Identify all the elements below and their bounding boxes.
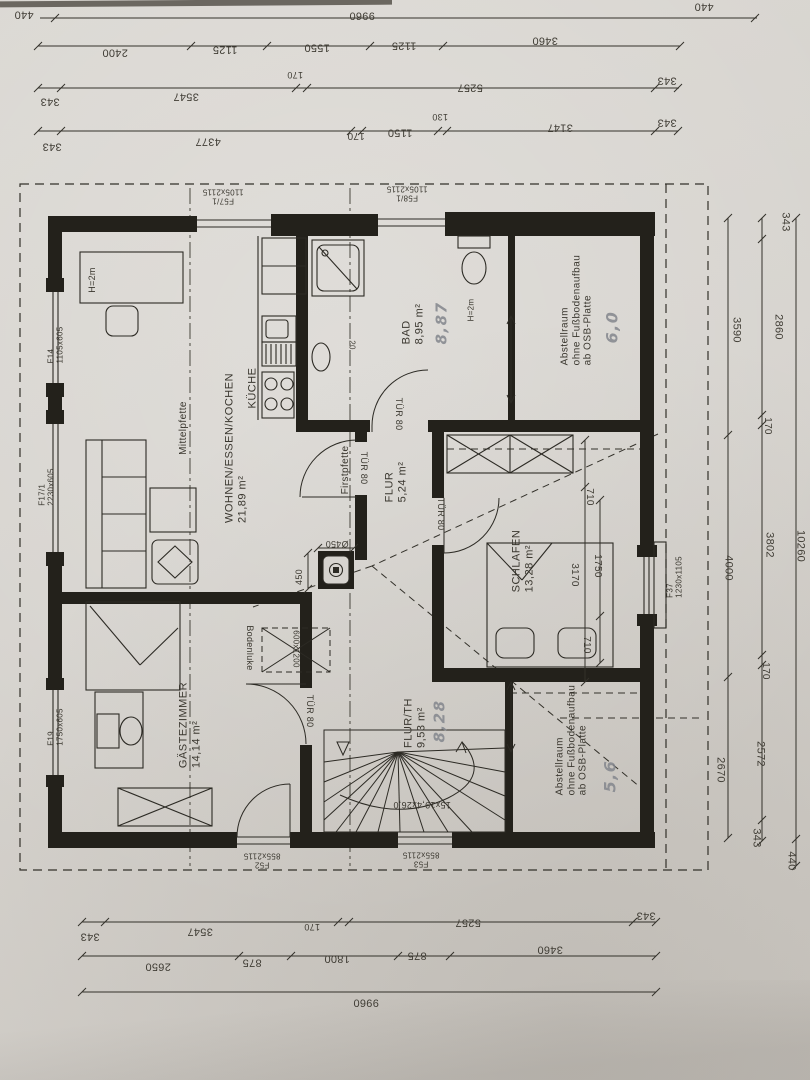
dim-label: 2670 [714,757,727,783]
window-label-f14: F14 1105x605 [47,327,66,364]
dimension-lines [34,14,800,996]
dim-label: 440 [14,8,33,21]
dim-label: 1125 [392,39,417,52]
dim-label: 1150 [388,126,413,139]
dim-label: 2650 [145,960,171,973]
dim-label: 875 [407,949,426,962]
dim-label: 343 [42,140,61,153]
room-label-bad: BAD 8,95 m² [400,304,426,345]
dim-label: 710 [580,636,592,654]
dim-label: 440 [694,0,713,12]
door-label-f53: F53 855x2115 [403,850,440,869]
dim-label: 3802 [763,532,776,558]
dim-label: 1800 [324,952,350,965]
handwritten-area: 5,6 [602,760,621,793]
dim-label: 170 [287,70,303,80]
dim-label: 1125 [213,43,238,56]
note-bodenluke-size: 600x1200 [291,630,300,668]
dim-label: 3460 [537,943,563,956]
dim-label: 4000 [722,555,735,581]
dim-label: 3590 [730,317,743,343]
window-label-f17: F17/1 2230x605 [38,468,57,506]
dim-label: 343 [779,212,792,231]
note-bodenluke: Bodenluke [245,625,255,670]
handwritten-area: 8,87 [433,301,450,344]
handwritten-area: 6,0 [604,311,623,344]
floor-plan-drawing [0,0,810,1080]
dim-label: 343 [636,909,655,922]
note-headroom: H=2m [87,267,97,292]
dim-label: 1750 [591,554,603,577]
dim-label: 20 [347,340,356,350]
note-headroom: H=2m [466,299,475,322]
dim-label: 3170 [568,563,580,586]
dim-label: 343 [80,930,99,943]
dim-label: 170 [304,922,320,932]
room-label-schlafen: SCHLAFEN 13,28 m² [510,530,536,593]
door-label-tuer80: TÜR 80 [359,452,369,485]
dim-label: 2860 [772,314,785,340]
dim-label: 875 [242,956,261,969]
door-label-tuer80: TÜR 80 [394,398,404,431]
axis-label-mittelpfette: Mittelpfette [178,401,190,455]
stair-label: 15x19,4x26,0 [393,800,451,810]
window-label-f19: F19 1750x605 [47,708,66,746]
dim-label: 3547 [187,925,213,938]
dim-label: 1550 [304,41,330,54]
dim-label: 170 [347,129,365,141]
dim-label: 3547 [173,90,199,103]
roof-dashed-lines [253,434,704,787]
dim-label: 170 [761,417,773,435]
floor-plan-sheet: 4409960440240011251550112534603433547170… [0,0,810,1080]
dim-label: 4377 [195,135,221,148]
axis-label-firstpfette: Firstpfette [340,446,352,495]
dim-label: 5257 [455,916,481,929]
dim-label: 710 [583,488,595,506]
dim-label: 3460 [532,34,558,47]
dim-label: 10260 [794,530,807,562]
window-label-f37: F37 1230x1105 [666,556,685,598]
handwritten-area: 8,28 [431,699,448,742]
room-label-abstellraum-2: Abstellraum ohne Fußbodenaufbau ab OSB-P… [555,685,590,796]
room-label-flur-th: FLUR/TH 9,53 m² [402,698,428,748]
room-label-flur: FLUR 5,24 m² [383,462,409,503]
dim-label: Ø450 [325,539,348,549]
dim-label: 130 [432,112,448,122]
dim-label: 343 [657,74,676,87]
door-label-tuer80: TÜR 80 [305,695,315,728]
dim-label: 343 [40,95,59,108]
room-label-gaestezimmer: GÄSTEZIMMER 14,14 m² [177,682,203,768]
paper-shading [0,980,810,1080]
door-label-f52: F52 855x2115 [244,851,281,870]
door-label-f58: F58/1 1105x2115 [386,184,427,203]
room-label-kueche: KÜCHE [247,367,260,408]
dim-label: 343 [750,828,763,847]
dim-label: 170 [759,662,771,680]
room-label-wohnen: WOHNEN/ESSEN/KOCHEN 21,89 m² [223,373,249,523]
chimney [323,556,349,584]
dim-label: 440 [785,851,798,870]
dim-label: 3147 [547,121,573,134]
room-label-abstellraum-1: Abstellraum ohne Fußbodenaufbau ab OSB-P… [560,255,595,366]
dim-label: 2572 [754,741,767,767]
dim-label: 2400 [102,46,128,59]
dim-label: 343 [657,116,676,129]
dim-label: 9960 [349,9,375,22]
door-label-tuer80: TÜR 80 [436,498,446,531]
purlin-axes [190,188,350,866]
dim-label: 5257 [457,81,483,94]
door-label-f57: F57/1 1105x2115 [202,187,243,206]
dim-label: 450 [294,569,304,585]
